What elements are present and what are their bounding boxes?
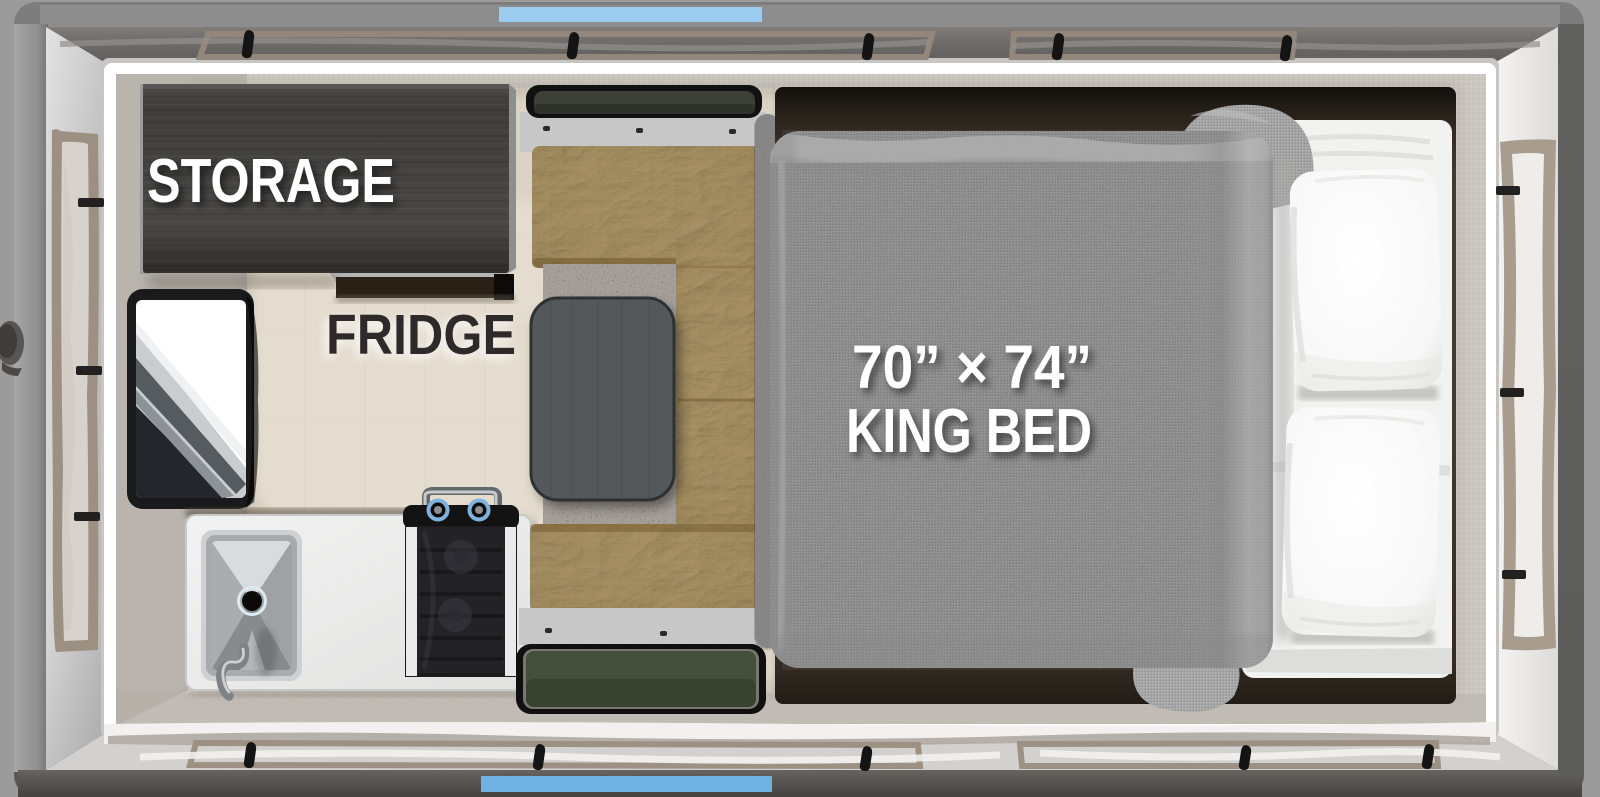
svg-text:STORAGE: STORAGE [147,147,395,216]
svg-text:KING BED: KING BED [846,397,1092,466]
svg-text:FRIDGE: FRIDGE [326,303,516,367]
svg-text:70” × 74”: 70” × 74” [852,333,1092,401]
